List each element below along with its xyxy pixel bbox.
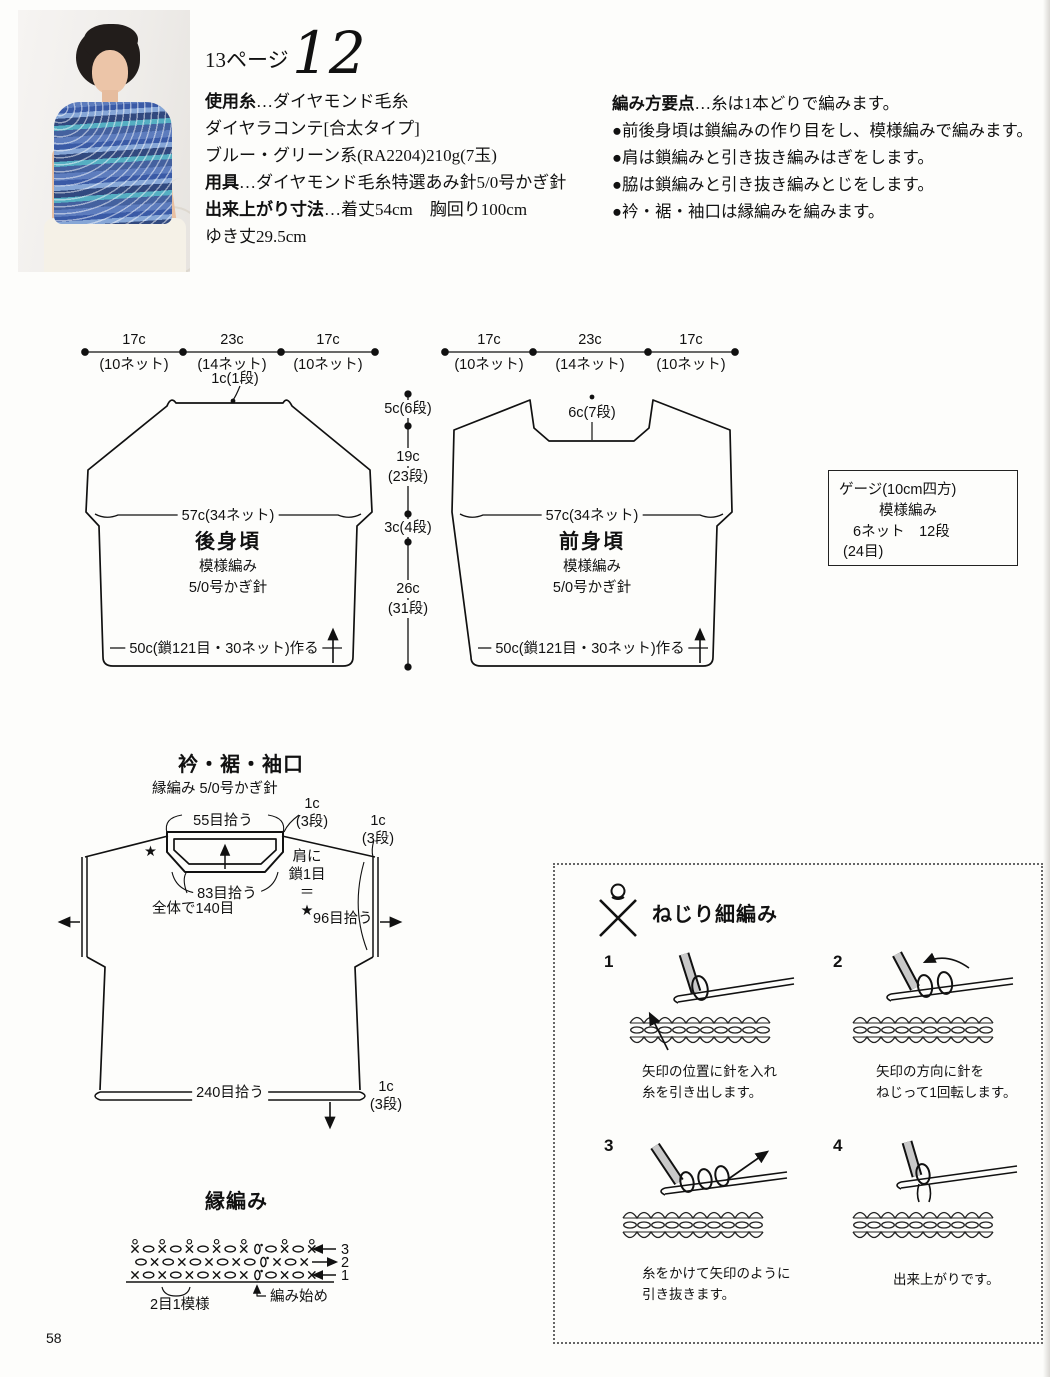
front-measure-sub: (10ネット) (454, 356, 523, 374)
model-face (92, 50, 128, 94)
step-number: 2 (833, 952, 842, 972)
side-measure-2: 19c (392, 448, 423, 466)
page-number: 58 (46, 1330, 62, 1346)
front-measure-value: 23c (578, 331, 601, 349)
materials-line: ブルー・グリーン系(RA2204)210g(7玉) (205, 142, 497, 169)
materials-label: 用具 (205, 173, 239, 192)
front-piece-name: 前身頃 (559, 530, 625, 555)
materials-text: …ダイヤモンド毛糸 (256, 92, 409, 111)
neck-rows: 1c (3段) (296, 795, 328, 831)
materials-label: 使用糸 (205, 92, 256, 111)
howto-text: ●脇は鎖編みと引き抜き編みとじをします。 (612, 175, 934, 194)
step-number: 4 (833, 1136, 842, 1156)
materials-text: ゆき丈29.5cm (205, 227, 307, 246)
edging-subtitle: 縁編み 5/0号かぎ針 (152, 777, 278, 798)
back-measure-value: 17c (122, 331, 145, 349)
pattern-repeat-note: 2目1模様 (150, 1296, 210, 1314)
armhole-rows: 1c (3段) (362, 812, 394, 848)
back-neck-depth: 1c(1段) (211, 370, 259, 388)
howto-line: ●肩は鎖編みと引き抜き編みはぎをします。 (612, 144, 934, 171)
step-caption: 出来上がりです。 (893, 1270, 1000, 1291)
materials-text: ダイヤラコンテ[合太タイプ] (205, 119, 420, 138)
step-number: 3 (604, 1136, 613, 1156)
hem-pickup: 240目拾う (192, 1084, 268, 1102)
side-measure-1: 5c(6段) (380, 400, 436, 418)
howto-line: ●前後身頃は鎖編みの作り目をし、模様編みで編みます。 (612, 117, 1033, 144)
howto-line: ●脇は鎖編みと引き抜き編みとじをします。 (612, 171, 934, 198)
howto-line: 編み方要点…糸は1本どりで編みます。 (612, 90, 899, 117)
back-measure-sub: (10ネット) (293, 356, 362, 374)
materials-line: ダイヤラコンテ[合太タイプ] (205, 115, 420, 142)
step-caption: 糸をかけて矢印のように 引き抜きます。 (642, 1264, 791, 1306)
materials-label: 出来上がり寸法 (205, 200, 324, 219)
side-measure-2b: (23段) (384, 468, 432, 486)
front-width: 57c(34ネット) (542, 507, 643, 525)
crochet-top (54, 102, 172, 224)
back-width: 57c(34ネット) (178, 507, 279, 525)
step-caption: 矢印の位置に針を入れ 糸を引き出します。 (642, 1062, 777, 1104)
materials-line: ゆき丈29.5cm (205, 223, 307, 250)
materials-line: 出来上がり寸法…着丈54cm 胸回り100cm (205, 196, 527, 223)
step2-illustration (853, 954, 1013, 1043)
side-measure-4: 26c (392, 580, 423, 598)
front-hook: 5/0号かぎ針 (553, 579, 631, 597)
front-measure-value: 17c (477, 331, 500, 349)
star-mark: ★ (144, 843, 157, 861)
front-stitch: 模様編み (563, 558, 621, 576)
hem-rows: 1c (3段) (370, 1078, 402, 1114)
model-skirt (44, 218, 186, 272)
howto-label: 編み方要点 (612, 94, 695, 113)
howto-line: ●衿・裾・袖口は縁編みを編みます。 (612, 198, 884, 225)
back-hook: 5/0号かぎ針 (189, 579, 267, 597)
gauge-title: ゲージ(10cm四方) (839, 481, 956, 499)
twisted-sc-symbol (600, 885, 636, 937)
materials-text: …ダイヤモンド毛糸特選あみ針5/0号かぎ針 (239, 173, 566, 192)
front-cast-on: 50c(鎖121目・30ネット)作る (491, 640, 688, 658)
howto-text: ●前後身頃は鎖編みの作り目をし、模様編みで編みます。 (612, 121, 1033, 140)
howto-text: ●衿・裾・袖口は縁編みを編みます。 (612, 202, 884, 221)
front-neck-depth: 6c(7段) (568, 404, 616, 422)
side-measure-3: 3c(4段) (380, 519, 436, 537)
gauge-counts: 6ネット 12段 (853, 523, 950, 541)
front-measure-sub: (14ネット) (555, 356, 624, 374)
back-measure-value: 17c (316, 331, 339, 349)
back-cast-on: 50c(鎖121目・30ネット)作る (125, 640, 322, 658)
back-measure-sub: (10ネット) (99, 356, 168, 374)
technique-title: ねじり細編み (652, 898, 778, 927)
edge-chart-title: 縁編み (205, 1185, 268, 1214)
materials-line: 使用糸…ダイヤモンド毛糸 (205, 88, 409, 115)
pattern-page: 13ページ 12 使用糸…ダイヤモンド毛糸 ダイヤラコンテ[合太タイプ] ブルー… (0, 0, 1050, 1377)
back-piece-name: 後身頃 (195, 530, 261, 555)
back-stitch: 模様編み (199, 558, 257, 576)
gauge-box: ゲージ(10cm四方) 模様編み 6ネット 12段 (24目) (828, 470, 1018, 566)
front-measure-value: 17c (679, 331, 702, 349)
step-caption: 矢印の方向に針を ねじって1回転します。 (876, 1062, 1016, 1104)
howto-text: …糸は1本どりで編みます。 (695, 94, 900, 113)
model-photo (18, 10, 190, 272)
total-stitches: 全体で140目 (152, 900, 234, 918)
edging-title: 衿・裾・袖口 (178, 748, 304, 777)
chart-row-number: 1 (341, 1267, 349, 1285)
step1-illustration (630, 954, 794, 1050)
materials-line: 用具…ダイヤモンド毛糸特選あみ針5/0号かぎ針 (205, 169, 566, 196)
howto-text: ●肩は鎖編みと引き抜き編みはぎをします。 (612, 148, 934, 167)
gauge-stitch-count: (24目) (843, 543, 883, 561)
start-note: 編み始め (270, 1288, 328, 1306)
front-measure-sub: (10ネット) (656, 356, 725, 374)
back-measure-value: 23c (220, 331, 243, 349)
neck-pickup: 55目拾う (189, 812, 257, 830)
step3-illustration (623, 1146, 787, 1238)
materials-text: ブルー・グリーン系(RA2204)210g(7玉) (205, 146, 497, 165)
design-number: 12 (292, 24, 366, 82)
materials-text: …着丈54cm 胸回り100cm (324, 200, 527, 219)
step4-illustration (853, 1142, 1017, 1238)
gauge-stitch: 模様編み (879, 502, 937, 520)
side-measure-4b: (31段) (384, 600, 432, 618)
armhole-pickup: 96目拾う (313, 910, 373, 928)
page-reference: 13ページ (205, 44, 289, 74)
step-number: 1 (604, 952, 613, 972)
